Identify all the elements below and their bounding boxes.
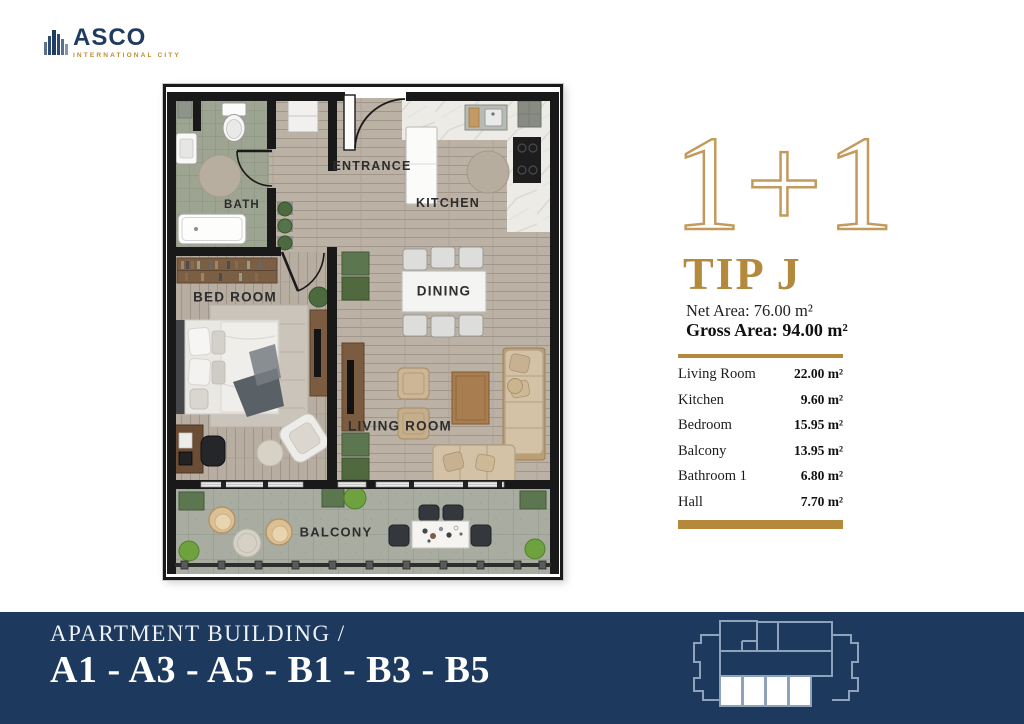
skyline-logo-icon bbox=[44, 25, 70, 57]
footer-banner: APARTMENT BUILDING / A1 - A3 - A5 - B1 -… bbox=[0, 612, 1024, 724]
room-name: Bathroom 1 bbox=[678, 468, 747, 485]
table-bottom-bar bbox=[678, 520, 843, 529]
room-label-dining: DINING bbox=[417, 284, 471, 299]
unit-type-badge: 1+1 bbox=[668, 116, 904, 252]
room-label-balcony: BALCONY bbox=[300, 525, 373, 540]
room-area: 13.95 m² bbox=[794, 443, 843, 459]
room-name: Kitchen bbox=[678, 392, 724, 409]
table-row: Kitchen 9.60 m² bbox=[678, 392, 843, 418]
room-area: 15.95 m² bbox=[794, 417, 843, 433]
brand-logo: ASCO INTERNATIONAL CITY bbox=[44, 25, 181, 59]
room-name: Hall bbox=[678, 494, 703, 511]
room-name: Bedroom bbox=[678, 417, 732, 434]
room-area: 7.70 m² bbox=[801, 494, 843, 510]
room-name: Balcony bbox=[678, 443, 726, 460]
table-row: Hall 7.70 m² bbox=[678, 494, 843, 520]
room-area: 6.80 m² bbox=[801, 468, 843, 484]
table-row: Living Room 22.00 m² bbox=[678, 366, 843, 392]
table-row: Balcony 13.95 m² bbox=[678, 443, 843, 469]
unit-type-name: TIP J bbox=[683, 247, 802, 300]
room-label-kitchen: KITCHEN bbox=[416, 196, 480, 210]
unit-codes: A1 - A3 - A5 - B1 - B3 - B5 bbox=[50, 648, 490, 692]
net-area-text: Net Area: 76.00 m² bbox=[686, 301, 813, 321]
floor-plan: BATH ENTRANCE KITCHEN DINING BED ROOM LI… bbox=[163, 84, 563, 580]
room-name: Living Room bbox=[678, 366, 756, 383]
room-label-bath: BATH bbox=[224, 199, 260, 211]
gross-area-text: Gross Area: 94.00 m² bbox=[686, 320, 848, 341]
room-area: 22.00 m² bbox=[794, 366, 843, 382]
building-title: APARTMENT BUILDING / bbox=[50, 621, 346, 647]
brand-name: ASCO bbox=[73, 25, 181, 51]
room-label-living-room: LIVING ROOM bbox=[348, 419, 452, 434]
room-label-entrance: ENTRANCE bbox=[332, 159, 411, 173]
table-top-rule bbox=[678, 354, 843, 358]
brand-tagline: INTERNATIONAL CITY bbox=[73, 52, 181, 59]
building-key-plan-icon bbox=[692, 618, 862, 714]
table-row: Bathroom 1 6.80 m² bbox=[678, 468, 843, 494]
table-row: Bedroom 15.95 m² bbox=[678, 417, 843, 443]
room-area-table: Living Room 22.00 m² Kitchen 9.60 m² Bed… bbox=[678, 366, 843, 520]
room-area: 9.60 m² bbox=[801, 392, 843, 408]
room-label-bedroom: BED ROOM bbox=[193, 290, 277, 305]
